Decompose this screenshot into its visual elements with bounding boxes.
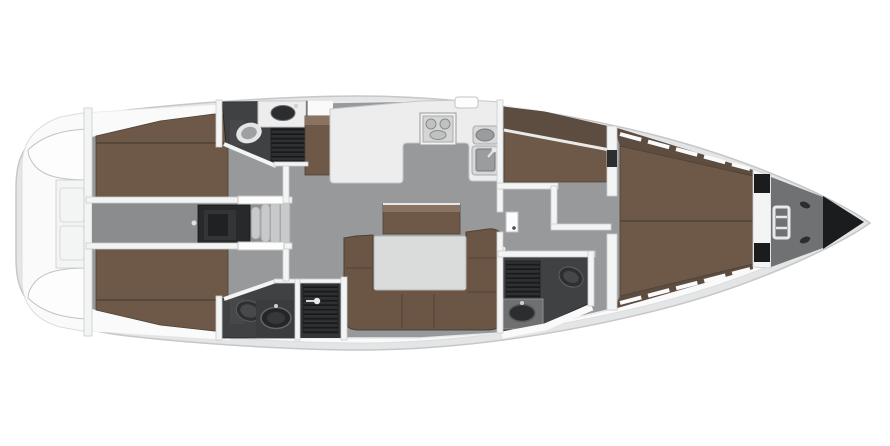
companionway-step-1	[252, 207, 261, 239]
head-wall-aft-port-left	[216, 100, 222, 147]
fwd-head-wall-right	[588, 251, 594, 306]
sideboard-top	[383, 204, 460, 212]
bulkhead-locker-top	[754, 174, 770, 193]
bulkhead-locker-aft	[607, 150, 617, 167]
faucet-aft-port	[294, 104, 298, 108]
deck-hatch	[455, 97, 478, 108]
salon-fwd-bulkhead-upper	[497, 100, 503, 212]
sink-aft-port	[271, 106, 295, 121]
companionway-step-3	[271, 202, 281, 245]
companionway	[92, 199, 290, 247]
stove-burner-left	[426, 119, 436, 129]
fwd-cabin-wall-horizontal	[497, 183, 558, 189]
forward-cabin-port	[504, 107, 610, 182]
fwd-head-wall-top	[498, 251, 595, 257]
shower-grate-aft-starboard	[303, 283, 338, 333]
corridor-door-handle	[512, 226, 516, 230]
fwd-cabin-wall-vertical	[551, 186, 557, 229]
shower-grate-aft-port	[271, 128, 305, 161]
floorplan-canvas	[0, 0, 890, 446]
corridor-door	[506, 212, 518, 232]
head-wall-aft-stbd-left	[216, 296, 222, 340]
sink-forward	[509, 305, 535, 322]
salon-fwd-bulkhead-lower	[497, 232, 503, 333]
aft-bulkhead-wall	[84, 108, 92, 336]
shower-divider-aft-stbd	[295, 279, 300, 340]
galley-cabinet-top	[305, 116, 331, 125]
faucet-forward	[520, 301, 524, 305]
cabin-door-aft-port	[238, 196, 284, 204]
head-wall-aft-port-bottom	[274, 162, 308, 166]
engine-detail	[208, 214, 228, 236]
faucet-aft-starboard	[274, 304, 278, 308]
head-wall-aft-stbd-right	[341, 277, 347, 340]
shower-door-handle	[314, 298, 320, 304]
corridor-knob	[192, 221, 197, 226]
owners-bulkhead-lower	[607, 234, 617, 310]
bulkhead-locker-bottom	[754, 243, 770, 262]
galley-sink-round	[476, 129, 494, 141]
yacht-floorplan	[0, 0, 890, 446]
fwd-corridor-wall	[551, 224, 611, 230]
cabin-wall-fwd-stbd	[283, 249, 289, 281]
cabin-wall-fwd-port	[283, 166, 289, 203]
companionway-step-2	[261, 204, 270, 242]
dinette-table	[374, 236, 466, 290]
stove-burner-right	[440, 119, 450, 129]
sink-bowl-aft-starboard	[267, 312, 285, 324]
stern-cockpit	[22, 108, 92, 336]
stove-burner-oval	[430, 131, 446, 140]
transom-panel	[56, 180, 88, 268]
companionway-step-4	[281, 199, 291, 247]
shower-grate-forward	[506, 261, 540, 300]
anchor-chain-locker	[823, 196, 864, 249]
galley	[305, 97, 500, 183]
cabin-door-aft-starboard	[238, 242, 284, 250]
deck-patch-midship	[305, 101, 333, 117]
